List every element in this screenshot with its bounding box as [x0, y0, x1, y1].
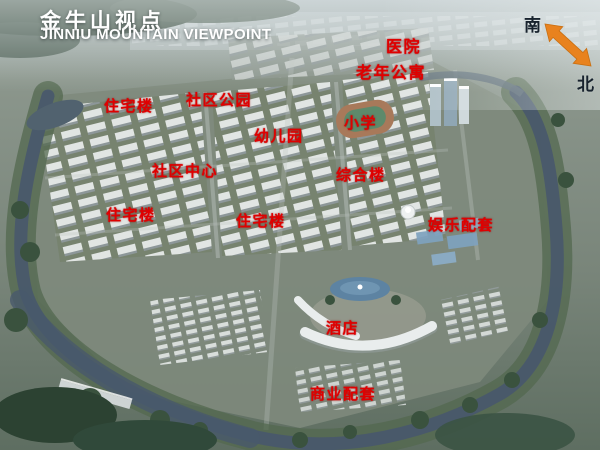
map-label: 社区公园 — [186, 89, 252, 110]
page-title-english: JINNIU MOUNTAIN VIEWPOINT — [40, 26, 271, 43]
map-label: 老年公寓 — [356, 59, 426, 83]
map-label: 综合楼 — [336, 164, 386, 185]
map-label: 社区中心 — [152, 160, 218, 181]
map-label: 酒店 — [326, 317, 359, 338]
map-label: 住宅楼 — [104, 95, 154, 116]
map-label: 住宅楼 — [236, 210, 286, 231]
compass-north-label: 北 — [577, 70, 594, 95]
map-label: 小学 — [344, 112, 377, 133]
jinniu-viewpoint-rendering: 金牛山视点 JINNIU MOUNTAIN VIEWPOINT 南 北 医院老年… — [0, 0, 600, 450]
map-label: 医院 — [386, 33, 421, 57]
map-label: 娱乐配套 — [428, 214, 494, 235]
map-label: 幼儿园 — [254, 125, 304, 146]
compass-south-label: 南 — [524, 11, 541, 36]
aerial-masterplan-illustration — [0, 0, 600, 450]
map-label: 住宅楼 — [106, 204, 156, 225]
map-label: 商业配套 — [310, 383, 376, 404]
